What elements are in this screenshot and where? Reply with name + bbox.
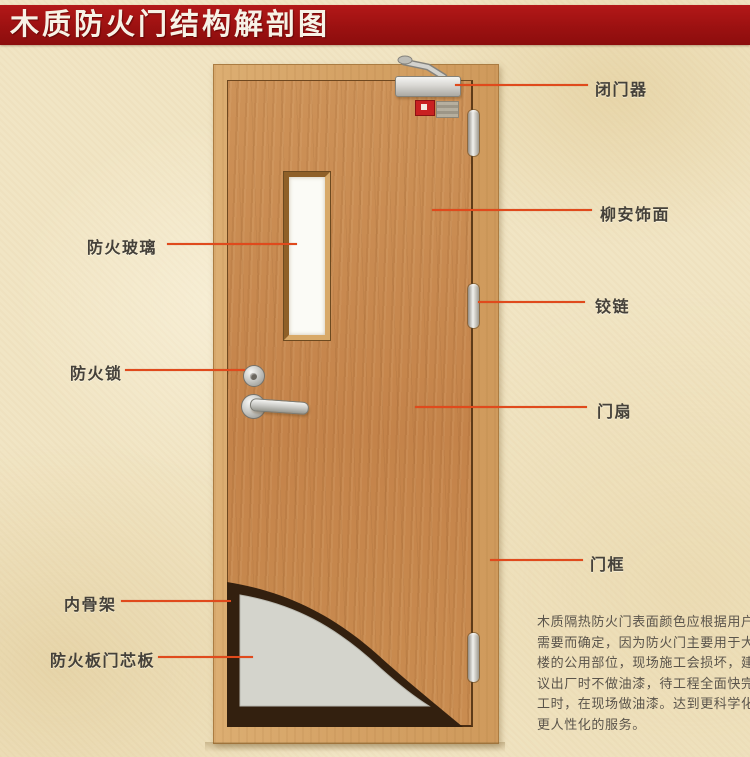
label-fire-glass: 防火玻璃 <box>87 234 157 258</box>
hinge-top <box>468 110 479 156</box>
description-line: 工时，在现场做油漆。达到更科学化 <box>537 694 745 715</box>
description-line: 需要而确定，因为防火门主要用于大 <box>537 633 745 654</box>
leader-door-leaf <box>415 406 587 408</box>
page-title: 木质防火门结构解剖图 <box>0 5 330 45</box>
door-closer-plate <box>436 101 459 118</box>
fire-board-core-shape <box>240 595 429 706</box>
label-hinge: 铰链 <box>595 293 630 317</box>
leader-lauan-veneer <box>432 209 592 211</box>
glass-window <box>284 172 330 340</box>
description-line: 木质隔热防火门表面颜色应根据用户 <box>537 612 745 633</box>
label-door-leaf: 门扇 <box>597 398 632 422</box>
hinge-bottom <box>468 633 479 682</box>
label-door-frame: 门框 <box>590 551 625 575</box>
leader-fire-board-core <box>158 656 253 658</box>
cutaway-core-section <box>213 575 475 728</box>
leader-door-frame <box>490 559 583 561</box>
door-closer-body <box>395 76 461 97</box>
leader-door-closer <box>455 84 588 86</box>
leader-inner-skeleton <box>121 600 231 602</box>
hinge-middle <box>468 284 479 328</box>
leader-fire-lock <box>125 369 245 371</box>
title-banner: 木质防火门结构解剖图 <box>0 5 750 45</box>
label-fire-board-core: 防火板门芯板 <box>50 647 155 671</box>
door-closer-red-box <box>415 100 435 116</box>
label-inner-skeleton: 内骨架 <box>64 591 117 615</box>
door-shadow <box>205 742 505 752</box>
description-paragraph: 木质隔热防火门表面颜色应根据用户 需要而确定，因为防火门主要用于大 楼的公用部位… <box>537 612 745 735</box>
label-lauan-veneer: 柳安饰面 <box>600 201 670 225</box>
description-line: 楼的公用部位，现场施工会损坏，建 <box>537 653 745 674</box>
description-line: 更人性化的服务。 <box>537 715 745 736</box>
leader-fire-glass <box>167 243 297 245</box>
label-door-closer: 闭门器 <box>595 76 648 100</box>
lock-cylinder <box>243 365 265 387</box>
leader-hinge <box>478 301 585 303</box>
label-fire-lock: 防火锁 <box>70 360 123 384</box>
description-line: 议出厂时不做油漆，待工程全面快完 <box>537 674 745 695</box>
